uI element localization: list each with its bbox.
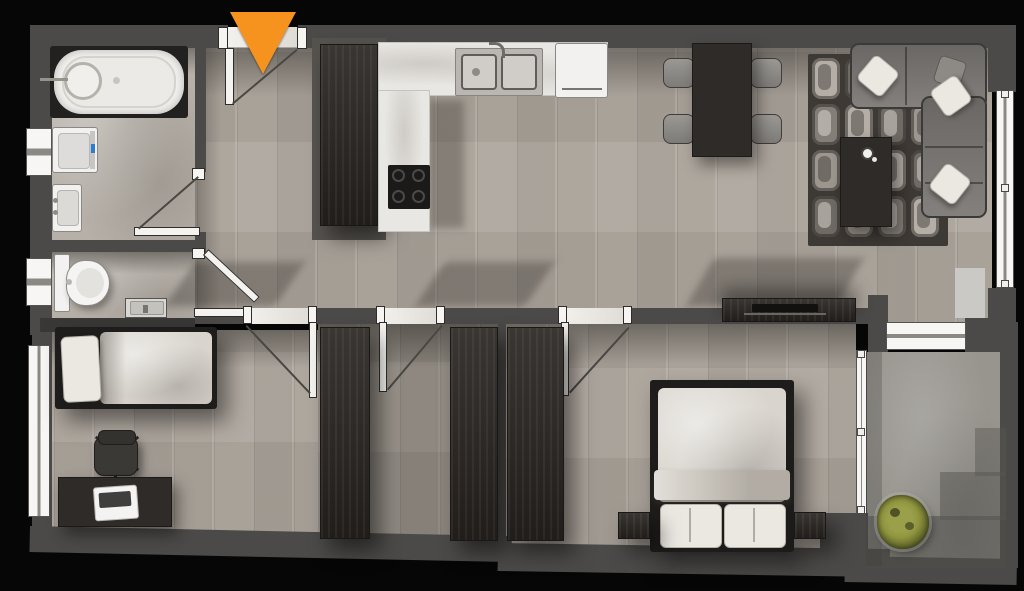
closet-bedroom2-wall bbox=[498, 324, 506, 542]
toilet-seat bbox=[76, 268, 104, 298]
window-mullion bbox=[1001, 280, 1009, 288]
closet-door-threshold bbox=[380, 308, 443, 324]
balcony-top-wall-a bbox=[868, 295, 888, 352]
window-mullion bbox=[857, 428, 865, 436]
bathtub-faucet bbox=[40, 78, 68, 81]
rug-motif-inner bbox=[818, 110, 831, 136]
divider-wall-b bbox=[315, 308, 380, 324]
bedroom1-window bbox=[28, 345, 50, 517]
washing-machine-indicator bbox=[91, 144, 95, 153]
double-bed-pillow bbox=[724, 504, 786, 548]
washing-machine-drum bbox=[58, 133, 90, 169]
burner bbox=[392, 190, 405, 203]
rug-motif bbox=[812, 58, 840, 99]
rug-motif-inner bbox=[851, 110, 864, 136]
nightstand bbox=[794, 512, 826, 539]
bedroom1-door-leaf bbox=[309, 322, 317, 398]
toilet-flush-button bbox=[66, 279, 72, 285]
bedroom1-door-jamb-left bbox=[243, 306, 252, 324]
nightstand bbox=[618, 512, 650, 539]
entrance-marker bbox=[230, 12, 296, 74]
dining-table bbox=[692, 43, 752, 157]
rug-motif-inner bbox=[818, 202, 831, 228]
dining-chair bbox=[750, 58, 782, 88]
window-mullion bbox=[857, 506, 865, 514]
tv-soundbar bbox=[744, 313, 826, 315]
refrigerator-handle bbox=[562, 88, 602, 90]
sofa-cushion-seam bbox=[925, 146, 983, 148]
balcony-top-wall-b bbox=[965, 318, 1013, 352]
closet-door-jamb-right bbox=[436, 306, 445, 324]
entrance-jamb-right bbox=[297, 27, 307, 49]
burner bbox=[412, 169, 425, 182]
sofa-cushion-seam bbox=[905, 47, 907, 105]
wardrobe bbox=[450, 327, 498, 541]
bathroom-basin-bowl bbox=[57, 190, 79, 226]
divider-wall-c bbox=[443, 308, 562, 324]
double-bed-pillow bbox=[660, 504, 722, 548]
rug-motif-inner bbox=[818, 64, 831, 90]
sink-drain bbox=[472, 68, 480, 76]
window-mullion bbox=[1001, 184, 1009, 192]
kitchen-tall-cabinet bbox=[320, 44, 378, 226]
pillow-crease bbox=[753, 508, 755, 542]
dining-chair bbox=[750, 114, 782, 144]
dining-chair bbox=[663, 114, 695, 144]
balcony-shadow-step-2 bbox=[940, 472, 1006, 520]
burner bbox=[412, 190, 425, 203]
tv bbox=[752, 304, 818, 312]
bedroom2-door-threshold bbox=[562, 308, 630, 324]
floor-plan-canvas bbox=[0, 0, 1024, 591]
counter-left-run bbox=[378, 90, 430, 232]
coffee-cup-handle bbox=[872, 157, 877, 162]
balcony-sliding-door bbox=[886, 322, 966, 350]
entrance-jamb-left bbox=[218, 27, 228, 49]
bathtub-drain-circle bbox=[64, 62, 102, 100]
bathroom-wc-divider bbox=[50, 240, 195, 252]
burner bbox=[392, 169, 405, 182]
dining-chair bbox=[663, 58, 695, 88]
closet-door-leaf bbox=[379, 322, 387, 392]
laptop-keyboard bbox=[99, 491, 132, 508]
bedroom2-door-jamb-right bbox=[623, 306, 632, 324]
single-bed-pillow bbox=[60, 335, 101, 403]
rug-motif bbox=[812, 104, 840, 145]
window-sill bbox=[955, 268, 985, 318]
wc-window bbox=[26, 258, 52, 306]
right-wall-upper bbox=[988, 25, 1016, 92]
sink-basin-right bbox=[501, 54, 537, 90]
wc-hand-basin-tap bbox=[143, 305, 148, 313]
window-mullion bbox=[1001, 90, 1009, 98]
bathtub-overflow bbox=[113, 77, 120, 84]
balcony-shadow-step-3 bbox=[975, 428, 1006, 476]
wardrobe bbox=[320, 327, 370, 539]
bedroom1-door-threshold bbox=[245, 308, 315, 324]
single-bed-duvet-fold bbox=[100, 332, 126, 404]
plant-detail bbox=[905, 522, 914, 530]
rug-motif-inner bbox=[884, 110, 897, 136]
double-bed-fold-band bbox=[654, 470, 790, 500]
rug-motif bbox=[812, 196, 840, 237]
basin-tap-1 bbox=[53, 198, 58, 203]
bathroom-window-1 bbox=[26, 128, 52, 176]
office-chair-back bbox=[98, 430, 136, 445]
rug-motif bbox=[812, 150, 840, 191]
rug-motif-inner bbox=[818, 156, 831, 182]
plant-detail bbox=[890, 508, 900, 517]
bathroom-right-wall-a bbox=[195, 45, 206, 172]
window-mullion bbox=[857, 350, 865, 358]
balcony-plant bbox=[877, 495, 929, 549]
pillow-crease bbox=[689, 508, 691, 542]
wardrobe bbox=[507, 327, 564, 541]
basin-tap-2 bbox=[53, 210, 58, 215]
right-wall-stub bbox=[988, 288, 1016, 322]
bathroom-door-leaf bbox=[134, 227, 200, 236]
